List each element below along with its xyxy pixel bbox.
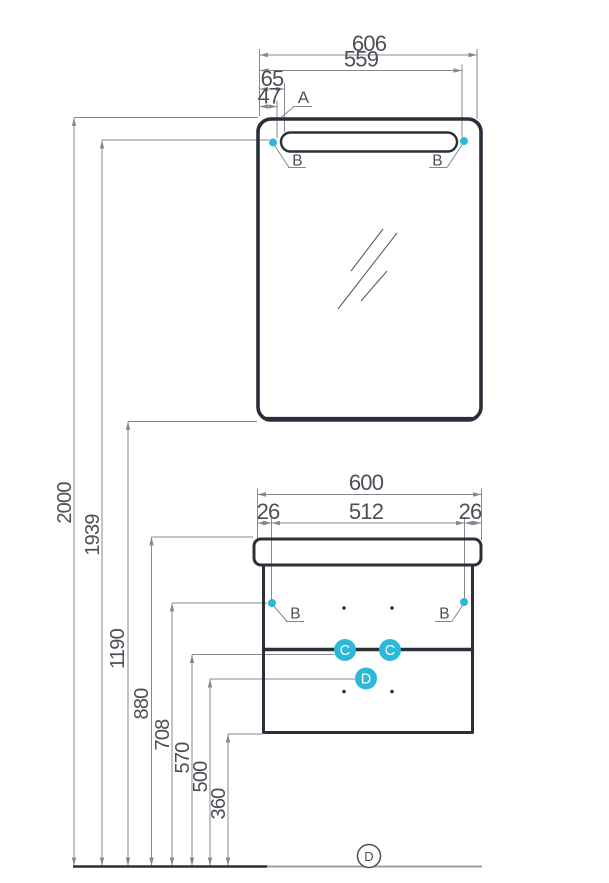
dim-26-right-label: 26 — [459, 499, 482, 524]
washbasin-top — [254, 539, 481, 565]
dim-880-label: 880 — [131, 688, 153, 720]
dim-1190-label: 1190 — [107, 628, 129, 668]
dim-559-label: 559 — [344, 47, 379, 72]
dim-708-label: 708 — [152, 719, 174, 751]
mount-point-b-mirror-right — [460, 137, 468, 145]
callout-b-vanity-left-label: B — [290, 606, 300, 623]
dim-2000-label: 2000 — [54, 482, 76, 524]
hotspot-c-left-label: C — [340, 643, 350, 659]
dim-360-label: 360 — [208, 788, 230, 820]
dimension-lines — [74, 55, 482, 866]
mount-point-b-vanity-right — [460, 598, 468, 606]
mount-point-b-vanity-left — [268, 599, 276, 607]
callout-a-label: A — [298, 88, 310, 107]
callout-b-mirror-right-label: B — [432, 153, 442, 170]
hotspot-c-left[interactable]: C — [334, 639, 356, 661]
mount-point-b-mirror-left — [269, 139, 277, 147]
callout-b-mirror-left-label: B — [292, 153, 302, 170]
furniture-dimension-drawing: C C D D 606 559 65 47 A B B 600 26 512 2… — [0, 0, 609, 883]
dim-47-label: 47 — [258, 84, 281, 109]
mirror-light-slot — [281, 133, 457, 152]
hotspot-d[interactable]: D — [355, 668, 377, 690]
dim-600-label: 600 — [349, 470, 384, 495]
dim-500-label: 500 — [190, 761, 212, 793]
mirror-reflection-lines — [338, 229, 397, 309]
mount-point-markers — [268, 137, 468, 607]
dim-1939-label: 1939 — [82, 514, 104, 556]
callout-b-vanity-right-label: B — [439, 606, 449, 623]
hotspot-c-right[interactable]: C — [379, 639, 401, 661]
dim-26-left-label: 26 — [257, 499, 280, 524]
hotspot-c-right-label: C — [385, 643, 395, 659]
floor-revision-marker-label: D — [364, 849, 373, 864]
technical-drawing-canvas: C C D D 606 559 65 47 A B B 600 26 512 2… — [0, 0, 609, 883]
dim-512-label: 512 — [349, 499, 384, 524]
floor-revision-marker: D — [358, 845, 381, 868]
hotspot-d-label: D — [361, 672, 371, 688]
leader-lines — [272, 107, 464, 622]
